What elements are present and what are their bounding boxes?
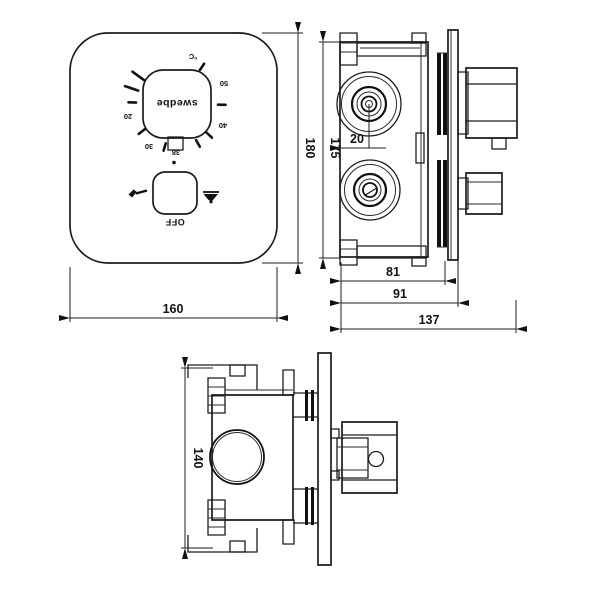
dial-label-50: 50 bbox=[220, 79, 228, 88]
bottom-bottom-tab bbox=[283, 520, 294, 544]
lower-cartridge bbox=[340, 160, 400, 220]
dim-label-175: 175 bbox=[328, 138, 342, 159]
brand-label: swedbe bbox=[156, 97, 198, 109]
wall-plate-edge bbox=[437, 53, 447, 247]
bottom-view bbox=[188, 353, 397, 565]
diverter-knob bbox=[153, 172, 197, 214]
dial-label-38: 38 bbox=[172, 148, 180, 157]
dim-label-140: 140 bbox=[191, 448, 205, 469]
dim-label-160: 160 bbox=[163, 302, 184, 316]
bottom-mounting-bracket bbox=[340, 240, 426, 266]
safety-dot bbox=[172, 161, 176, 165]
lower-arm bbox=[293, 487, 318, 525]
dim-body-height: 175 bbox=[319, 42, 342, 258]
hand-shower-icon bbox=[129, 190, 148, 198]
bottom-wall-plate bbox=[318, 353, 331, 565]
dim-label-180: 180 bbox=[303, 138, 317, 159]
bottom-top-tab bbox=[283, 370, 294, 395]
dial-label-30: 30 bbox=[145, 142, 153, 151]
trim-plate bbox=[70, 33, 277, 263]
dim-label-91: 91 bbox=[393, 287, 407, 301]
upper-arm bbox=[293, 390, 318, 421]
overhead-shower-icon bbox=[203, 192, 219, 203]
rough-in-box bbox=[340, 42, 428, 257]
dial-label-40: 40 bbox=[219, 121, 227, 130]
dim-depths: 81 91 137 bbox=[341, 261, 516, 333]
front-view: swedbe °C 50 40 30 20 38 bbox=[70, 33, 277, 263]
valve-body bbox=[448, 30, 458, 260]
off-label: OFF bbox=[165, 217, 185, 227]
cartridge-opening bbox=[210, 430, 264, 484]
lower-port-fitting bbox=[458, 173, 502, 214]
bottom-left-bracket-bottom bbox=[208, 500, 225, 535]
dial-label-celsius: °C bbox=[188, 52, 197, 61]
temperature-dial: swedbe °C 50 40 30 20 38 bbox=[124, 52, 228, 164]
dim-front-width: 160 bbox=[70, 267, 277, 322]
technical-drawing-sheet: swedbe °C 50 40 30 20 38 bbox=[0, 0, 600, 600]
diverter-control: OFF bbox=[129, 172, 220, 227]
bottom-outlet-fitting bbox=[331, 422, 397, 493]
drawing-canvas: swedbe °C 50 40 30 20 38 bbox=[0, 0, 600, 600]
dim-label-20: 20 bbox=[350, 132, 364, 146]
dial-label-20: 20 bbox=[124, 112, 132, 121]
dim-front-height: 180 bbox=[262, 33, 317, 263]
bottom-housing bbox=[212, 395, 293, 520]
upper-port-fitting bbox=[458, 68, 517, 149]
side-clip bbox=[416, 133, 424, 163]
dim-label-81: 81 bbox=[386, 265, 400, 279]
dim-label-137: 137 bbox=[419, 313, 440, 327]
top-mounting-bracket bbox=[340, 33, 426, 65]
